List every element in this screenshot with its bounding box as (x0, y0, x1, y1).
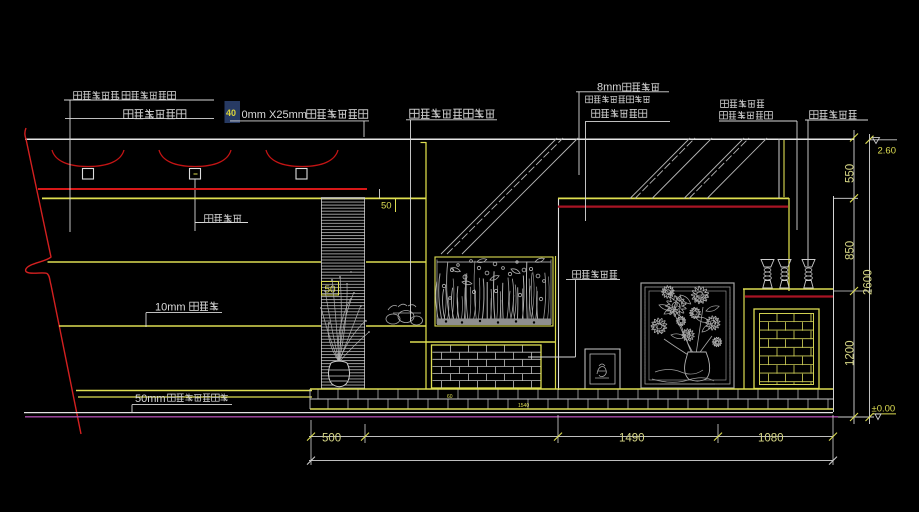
svg-text:50: 50 (381, 201, 392, 212)
svg-text:2600: 2600 (863, 269, 875, 295)
svg-text:60: 60 (447, 394, 453, 400)
svg-text:1200: 1200 (845, 340, 857, 366)
svg-text:1080: 1080 (758, 433, 784, 445)
svg-text:850: 850 (845, 241, 857, 260)
svg-text:1490: 1490 (619, 433, 645, 445)
svg-text:1540: 1540 (518, 403, 529, 409)
svg-text:2.60: 2.60 (878, 146, 897, 157)
svg-text:550: 550 (845, 164, 857, 183)
svg-text:50mm: 50mm (135, 393, 166, 405)
svg-text:0mm X25mm: 0mm X25mm (242, 109, 307, 121)
svg-text:500: 500 (322, 433, 341, 445)
svg-text:10mm: 10mm (155, 302, 186, 314)
svg-text:40: 40 (226, 108, 236, 118)
svg-text:±0.00: ±0.00 (872, 404, 896, 415)
svg-text:50: 50 (325, 285, 337, 296)
